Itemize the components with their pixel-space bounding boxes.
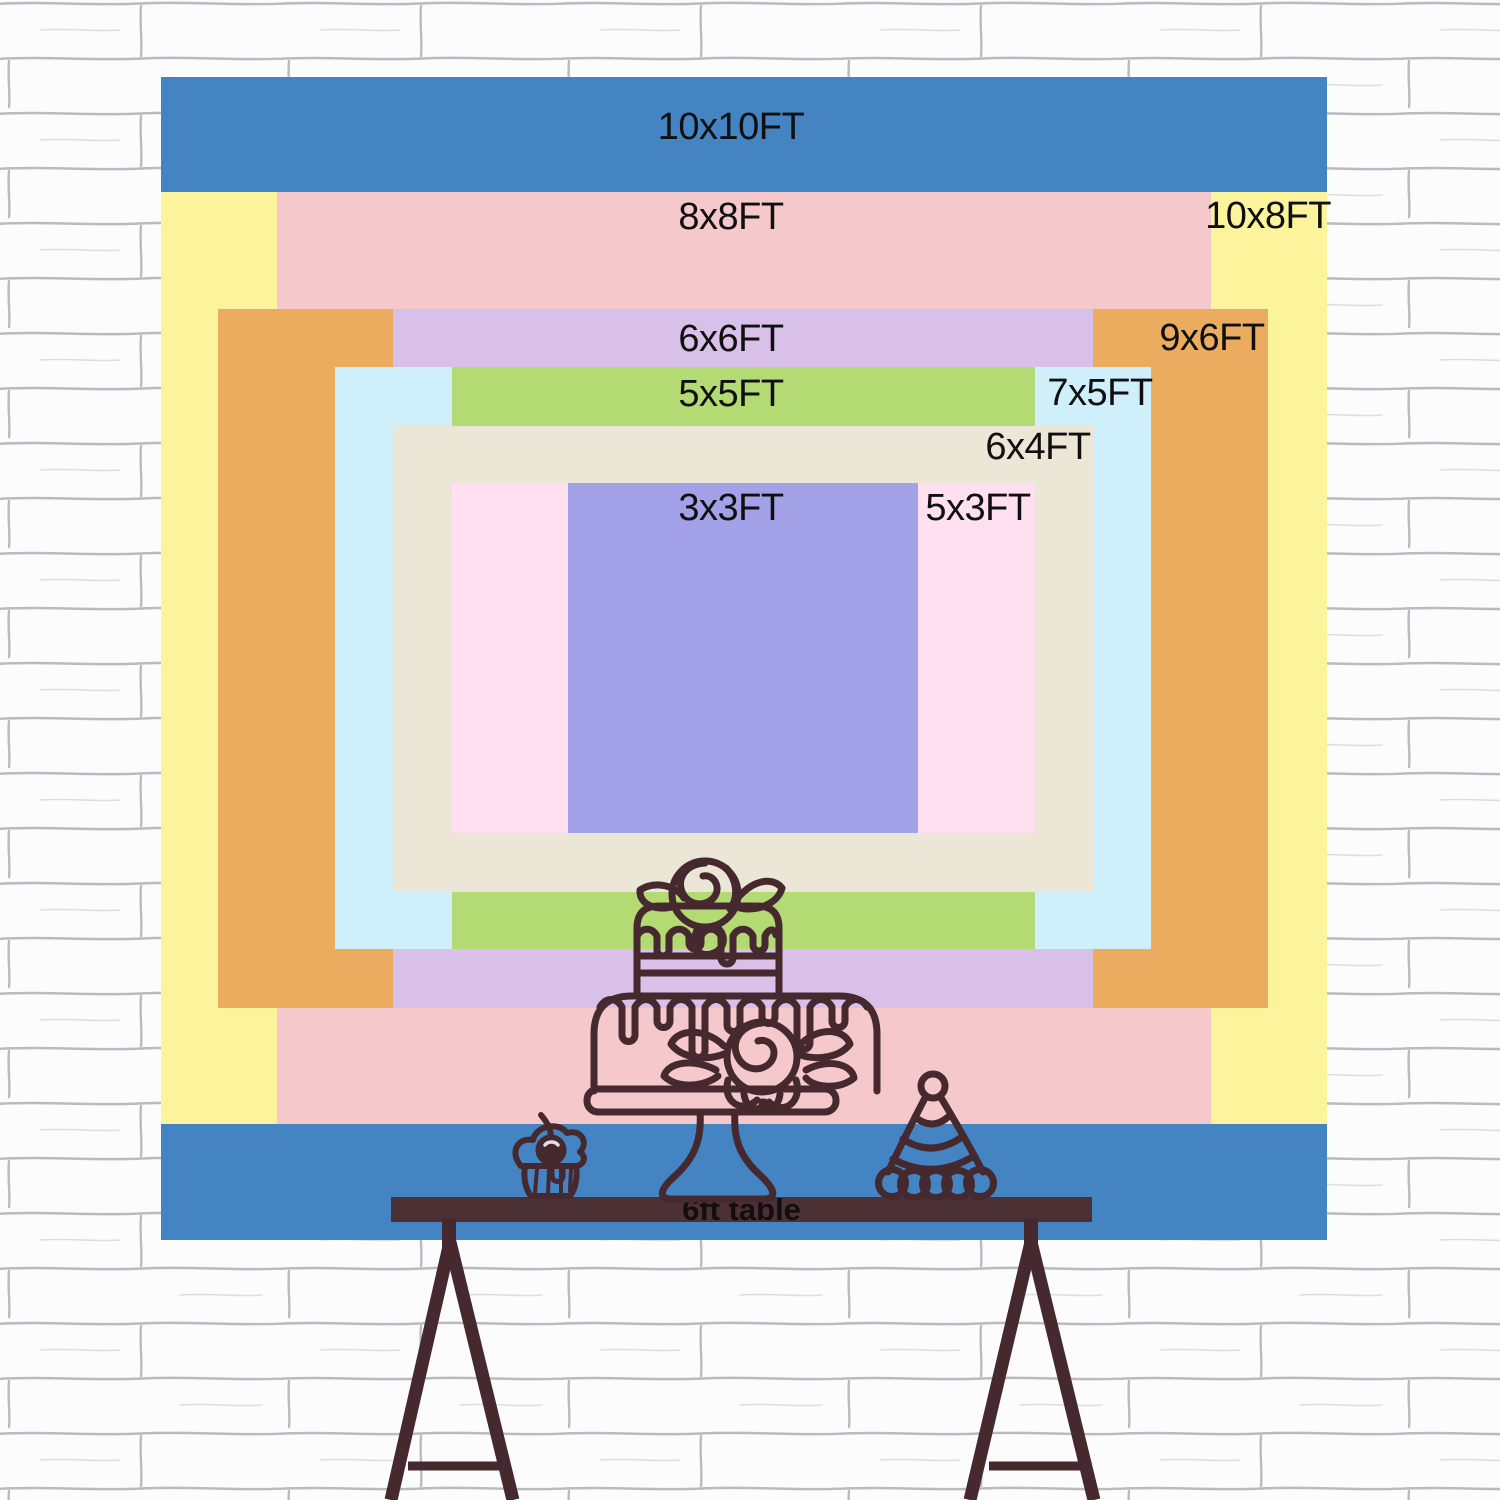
table-top: 6ft table xyxy=(391,1197,1092,1222)
backdrop-size-chart: 10x10FT10x8FT8x8FT9x6FT6x6FT7x5FT5x5FT6x… xyxy=(0,0,1500,1500)
backdrop-layers xyxy=(0,0,1500,1500)
backdrop-layer-3x3ft xyxy=(568,483,918,833)
table-label: 6ft table xyxy=(682,1194,801,1225)
